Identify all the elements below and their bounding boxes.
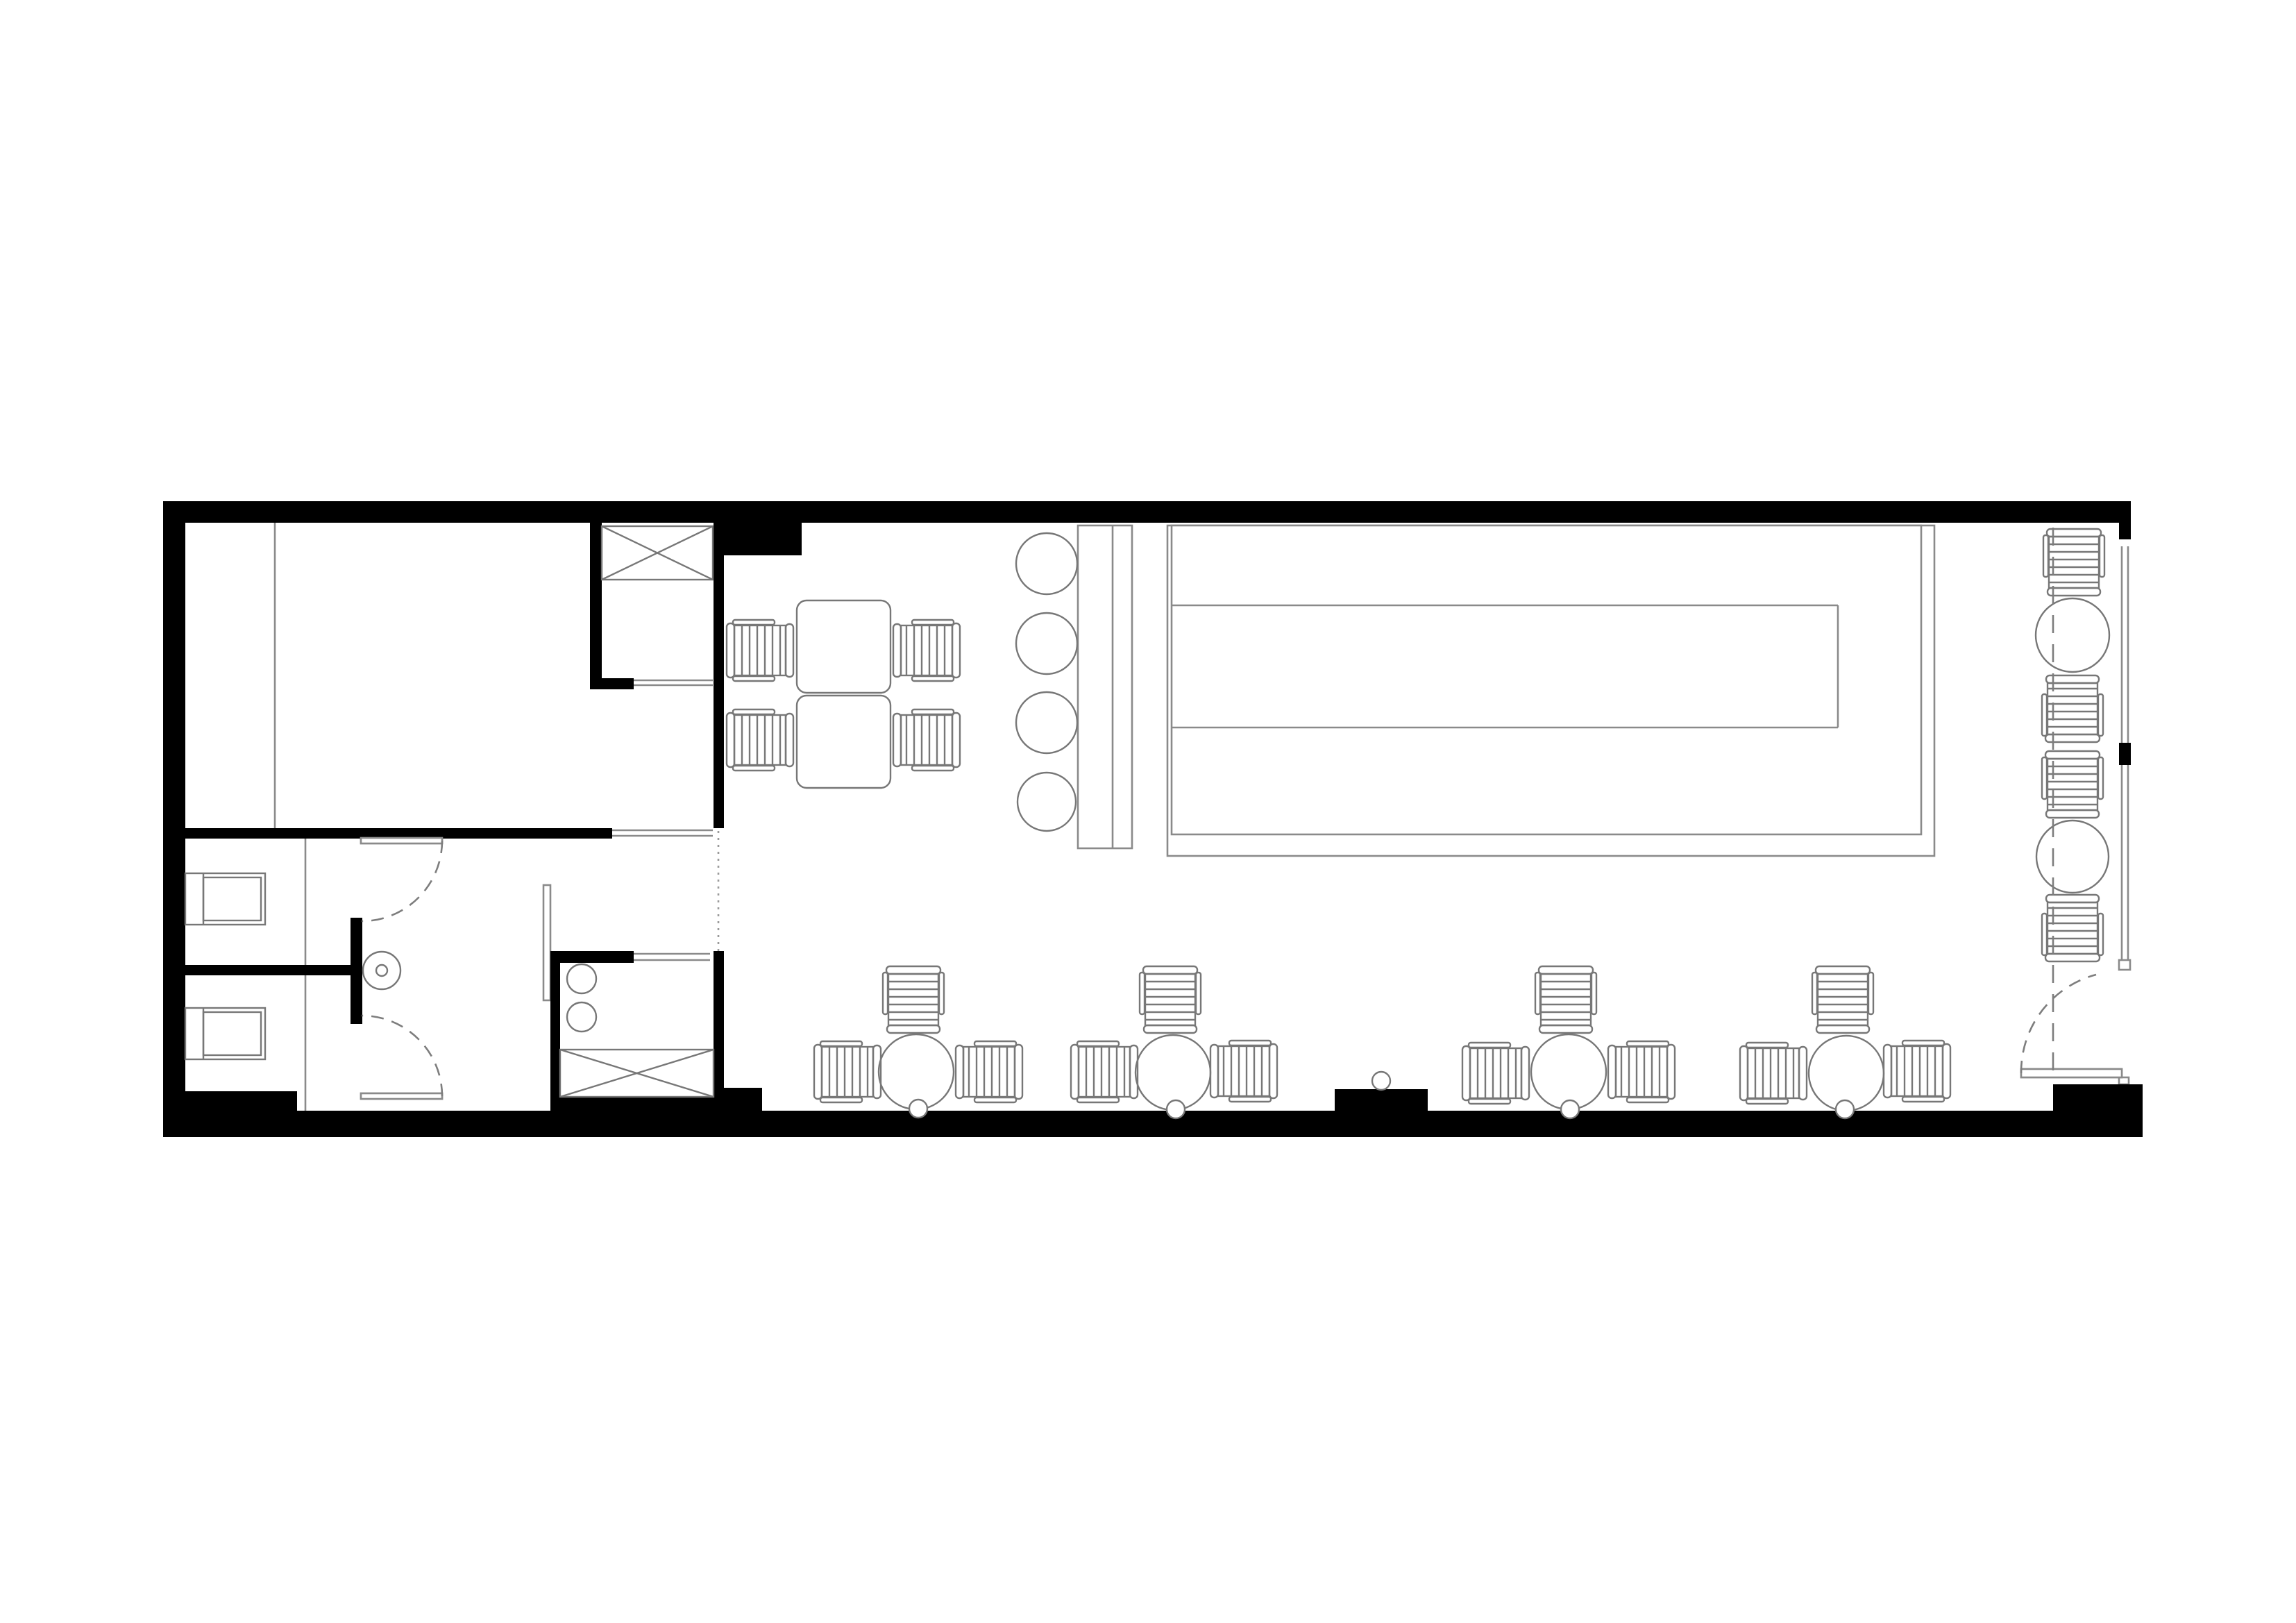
restroom-sink [363,952,400,989]
window-end-cap [2119,960,2130,970]
restroom-door-leaf-upper [361,838,442,843]
dining-table-2 [1136,1035,1210,1110]
table-base-1 [909,1100,927,1118]
left-wall [163,501,185,1137]
kitchenette-left-wall [550,963,560,1111]
floor-plan-drawing [0,0,2296,1623]
four-top-table-lower [797,696,890,788]
kitchenette-basin-1 [567,964,596,993]
bottom-pier-a [724,1088,762,1114]
bottom-wall-step-left [185,1091,297,1111]
closet-shaft [602,526,713,580]
bar-stool-3 [1016,692,1077,753]
dining-table-4 [1809,1036,1884,1111]
restroom-stub-wall [351,918,362,1024]
bottom-pier-b [1335,1089,1428,1114]
kitchenette-basin-2 [567,1002,596,1032]
top-wall-thick-segment [724,523,802,555]
restroom-sink-bowl [363,952,400,989]
door-stop [1372,1072,1390,1090]
toilet-lower-outline [185,1008,265,1059]
entry-pillar [2053,1084,2143,1137]
storage-counter-left [543,885,550,1000]
window-mullion [2119,743,2131,765]
closet-left-wall [590,523,602,689]
bar-counter-front [1078,525,1132,848]
top-right-corner-pillar [2119,523,2131,539]
closet-right-wall [714,523,724,828]
bar-stool-2 [1016,613,1077,674]
service-counter-outer [1172,525,1921,834]
four-top-table-upper [797,600,890,693]
toilet-lower [185,1008,265,1059]
bar-stool-1 [1016,533,1077,594]
window-table-2 [2036,821,2109,893]
kitchenette-right-wall [714,951,724,1111]
dining-table-1 [879,1034,954,1109]
closet-bottom-wall [602,678,634,689]
entry-door-leaf [2021,1069,2122,1077]
entry-frame-block [2119,1077,2129,1084]
bar-stool-4 [1018,773,1076,831]
kitchenette-top-wall [550,951,634,963]
floor-plan-page [0,0,2296,1623]
toilet-upper-outline [185,873,265,925]
kitchenette-cabinet [560,1050,714,1097]
paper-background [0,0,2296,1623]
dining-table-3 [1531,1034,1606,1109]
bottom-wall-step-kitchenette [550,1095,724,1111]
top-wall [163,501,2131,523]
table-base-2 [1167,1100,1185,1118]
restroom-middle-wall [185,965,362,975]
window-table-1 [2036,598,2109,672]
toilet-upper [185,873,265,925]
restroom-door-leaf-lower [361,1093,442,1099]
table-base-4 [1836,1100,1854,1118]
table-base-3 [1561,1100,1579,1118]
